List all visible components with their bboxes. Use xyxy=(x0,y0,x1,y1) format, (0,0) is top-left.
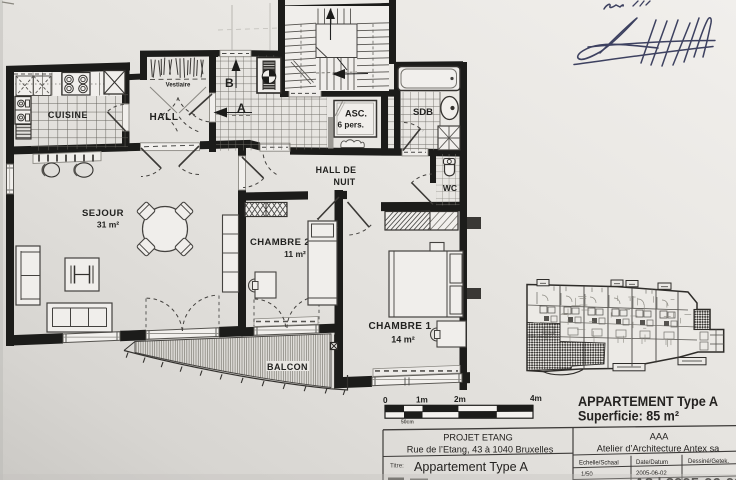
svg-text:1m: 1m xyxy=(416,396,428,405)
svg-text:CHAMBRE 1: CHAMBRE 1 xyxy=(368,321,431,332)
svg-text:6 pers.: 6 pers. xyxy=(338,121,364,130)
svg-text:B: B xyxy=(225,76,234,90)
svg-text:14 m²: 14 m² xyxy=(391,335,415,345)
svg-text:PROJET ETANG: PROJET ETANG xyxy=(443,433,513,443)
svg-text:31 m²: 31 m² xyxy=(97,220,119,230)
svg-text:HALL DE: HALL DE xyxy=(316,165,357,175)
svg-text:50cm: 50cm xyxy=(401,420,414,426)
svg-text:Date/Datum: Date/Datum xyxy=(636,460,668,466)
svg-text:Rue de l’Etang, 43 à 1040 Brux: Rue de l’Etang, 43 à 1040 Bruxelles xyxy=(407,445,554,455)
svg-text:CUISINE: CUISINE xyxy=(48,110,88,120)
svg-text:HALL: HALL xyxy=(149,112,178,123)
svg-text:NUIT: NUIT xyxy=(333,177,355,187)
svg-text:BALCON: BALCON xyxy=(267,362,308,372)
svg-text:11 m²: 11 m² xyxy=(284,249,306,259)
svg-text:CHAMBRE 2: CHAMBRE 2 xyxy=(250,237,310,248)
svg-text:Atelier d’Architecture Antex s: Atelier d’Architecture Antex sa xyxy=(597,444,720,454)
svg-text:Vestiaire: Vestiaire xyxy=(166,83,191,89)
svg-text:Titre:: Titre: xyxy=(390,463,404,470)
svg-text:Appartement Type A: Appartement Type A xyxy=(414,460,528,474)
svg-text:Dessiné/Getek.: Dessiné/Getek. xyxy=(688,459,729,465)
svg-text:AAA: AAA xyxy=(650,431,670,442)
svg-text:2m: 2m xyxy=(454,395,466,404)
svg-text:Echelle/Schaal: Echelle/Schaal xyxy=(579,461,619,467)
svg-text:SEJOUR: SEJOUR xyxy=(82,208,124,219)
svg-text:4m: 4m xyxy=(530,394,542,403)
svg-text:WC: WC xyxy=(443,183,457,193)
svg-text:A: A xyxy=(237,101,246,115)
svg-text:0: 0 xyxy=(383,396,388,405)
svg-text:Superficie: 85 m²: Superficie: 85 m² xyxy=(578,409,679,424)
svg-text:ASC.: ASC. xyxy=(345,109,367,119)
svg-text:SDB: SDB xyxy=(413,107,433,118)
